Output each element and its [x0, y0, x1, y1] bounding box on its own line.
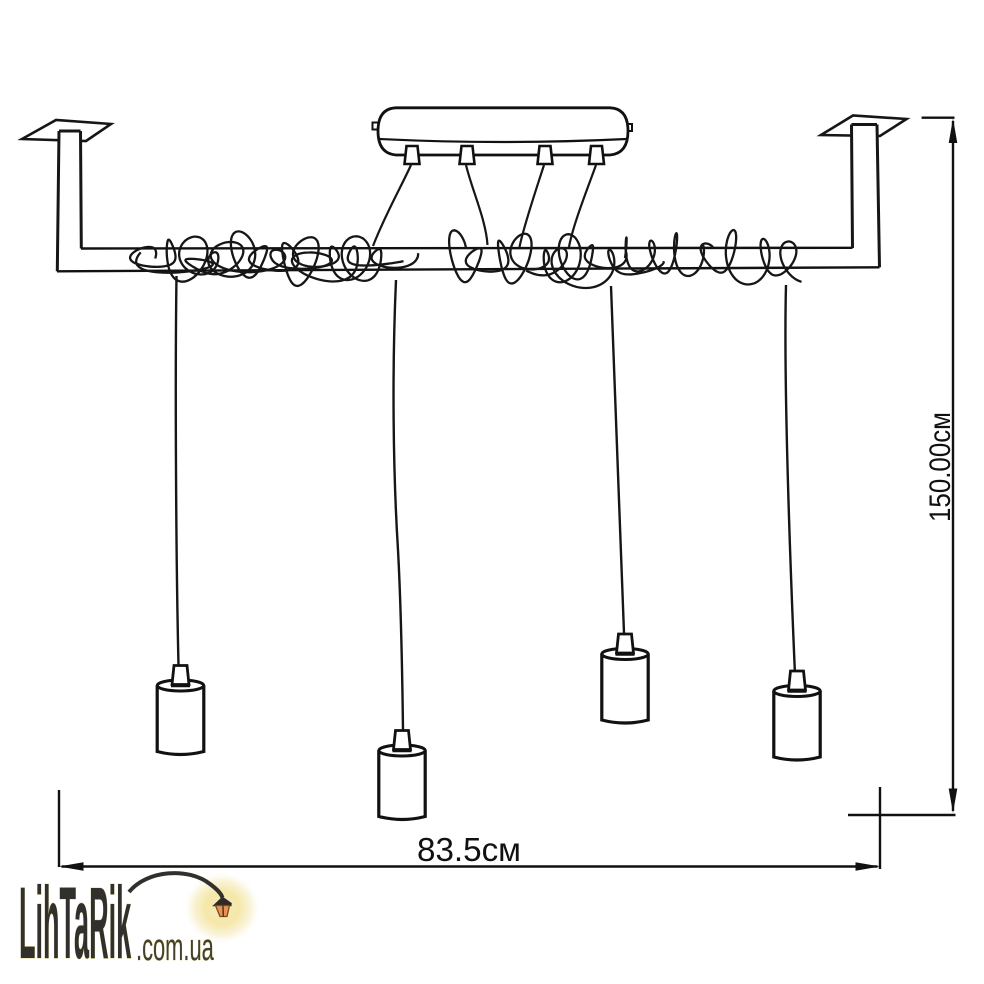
svg-text:LihTaRik: LihTaRik	[19, 865, 131, 980]
svg-text:.com.ua: .com.ua	[136, 927, 214, 969]
svg-text:83.5см: 83.5см	[417, 832, 521, 869]
svg-text:150.00см: 150.00см	[924, 412, 957, 522]
